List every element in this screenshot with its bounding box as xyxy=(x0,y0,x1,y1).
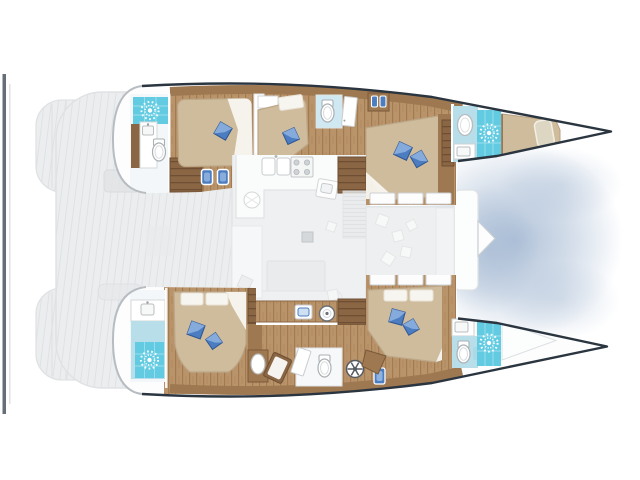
sink-icon xyxy=(141,304,154,315)
faucet-dot xyxy=(147,123,149,125)
oval-sink-icon xyxy=(251,354,265,374)
bottle-icon xyxy=(372,96,378,107)
nav-seat xyxy=(232,226,262,298)
head-pillow-right xyxy=(206,293,228,305)
galley-prep-unit xyxy=(316,178,339,199)
toilet-icon xyxy=(321,100,334,122)
galley-faucet xyxy=(275,155,278,158)
head-pillow-left xyxy=(384,290,407,301)
toilet-icon xyxy=(318,355,331,377)
sink-icon xyxy=(457,147,470,156)
faucet-dot xyxy=(146,301,148,303)
hatch-row xyxy=(370,193,451,204)
stbd-forward-cabin xyxy=(362,274,454,374)
lounge-bench xyxy=(436,208,454,284)
head-pillow-right xyxy=(410,290,433,301)
port-forward-cabin xyxy=(366,114,454,204)
toilet-icon xyxy=(457,341,470,363)
sink-icon xyxy=(455,322,468,332)
stool-icon xyxy=(218,170,229,185)
galley-sink-left xyxy=(262,158,275,175)
washing-machine-icon xyxy=(295,305,312,319)
head-pillow xyxy=(278,94,304,110)
forward-lounge xyxy=(366,207,454,285)
round-basin-icon xyxy=(320,306,335,321)
galley-sink-right xyxy=(277,158,290,175)
companionway-steps-starboard xyxy=(338,299,366,325)
cockpit-seat xyxy=(146,226,172,256)
floorplan-page xyxy=(0,0,640,480)
stool-icon xyxy=(202,170,213,185)
catamaran-floorplan xyxy=(0,0,640,480)
port-aft-bathroom xyxy=(130,94,171,194)
davit-bar xyxy=(3,74,7,414)
bottle-icon xyxy=(380,96,386,107)
bottle-shelf xyxy=(368,93,389,111)
shower-door xyxy=(341,96,357,126)
toilet-icon xyxy=(153,139,166,161)
companionway-steps-port xyxy=(338,157,366,193)
washing-machine-icon xyxy=(347,361,364,378)
head-pillow-left xyxy=(181,293,203,305)
sink-icon xyxy=(143,126,154,135)
sofa-cushion-right xyxy=(327,289,339,301)
port-bow-bathroom xyxy=(451,104,501,162)
salon-rug xyxy=(343,191,369,238)
vanity-cabinet xyxy=(131,124,140,168)
port-mid-bathroom xyxy=(316,95,357,128)
hatch-row xyxy=(370,274,451,285)
davit-bar-highlight xyxy=(9,84,11,404)
forward-cockpit-bench xyxy=(454,190,478,290)
mast-post xyxy=(302,232,313,242)
stove xyxy=(291,157,313,177)
stbd-aft-bathroom xyxy=(130,288,168,388)
wall-divider xyxy=(165,288,168,388)
